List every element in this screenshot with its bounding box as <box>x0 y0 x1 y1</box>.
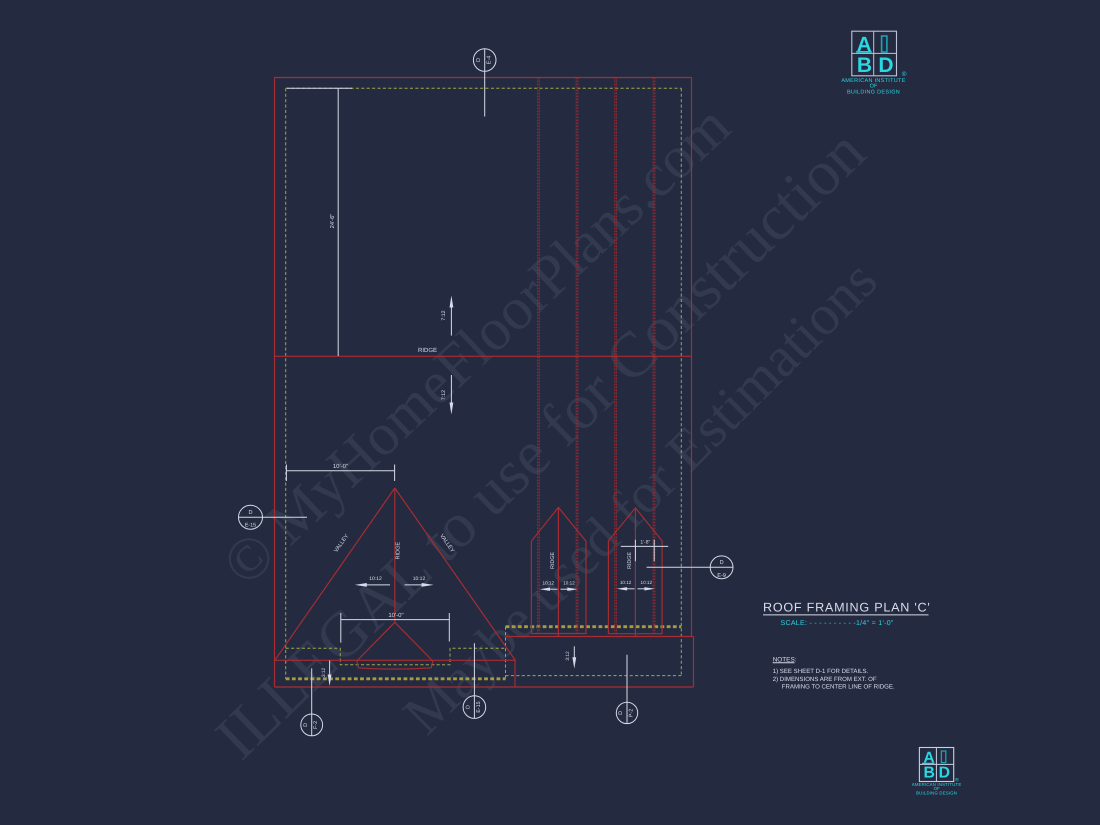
svg-text:RIDGE: RIDGE <box>418 347 437 354</box>
svg-text:RIDGE: RIDGE <box>627 552 633 569</box>
svg-text:E-15: E-15 <box>476 701 482 712</box>
svg-text:10:12: 10:12 <box>620 580 632 585</box>
svg-text:1) SEE SHEET D-1 FOR DETAILS.: 1) SEE SHEET D-1 FOR DETAILS. <box>773 668 869 675</box>
svg-text:BUILDING DESIGN: BUILDING DESIGN <box>847 89 900 95</box>
svg-text:10:12: 10:12 <box>543 580 555 585</box>
svg-text:B: B <box>857 54 872 77</box>
svg-text:3:12: 3:12 <box>321 668 327 678</box>
svg-text:RIDGE: RIDGE <box>550 552 556 569</box>
svg-text:10:12: 10:12 <box>563 580 575 585</box>
svg-text:D: D <box>618 711 624 715</box>
svg-text:SCALE: - - - - - - - - - -1/4": SCALE: - - - - - - - - - -1/4" = 1'-0" <box>781 619 894 627</box>
svg-text:B: B <box>923 765 934 782</box>
svg-text:FRAMING TO CENTER LINE OF RIDG: FRAMING TO CENTER LINE OF RIDGE. <box>782 683 895 690</box>
svg-text:D: D <box>720 560 724 566</box>
svg-text:7:12: 7:12 <box>441 390 447 400</box>
svg-text:3:12: 3:12 <box>565 651 571 661</box>
svg-text:RIDGE: RIDGE <box>396 542 402 560</box>
svg-text:P-2: P-2 <box>629 709 635 717</box>
svg-text:NOTES:: NOTES: <box>773 656 797 663</box>
svg-text:ROOF FRAMING PLAN 'C': ROOF FRAMING PLAN 'C' <box>763 601 931 615</box>
svg-text:10:12: 10:12 <box>369 576 382 582</box>
svg-text:BUILDING DESIGN: BUILDING DESIGN <box>916 791 957 796</box>
svg-text:E-15: E-15 <box>245 523 256 529</box>
svg-text:1'-8": 1'-8" <box>640 540 650 546</box>
svg-text:E-4: E-4 <box>486 56 492 65</box>
svg-text:D: D <box>303 723 309 727</box>
svg-text:D: D <box>248 510 252 516</box>
svg-text:F-2: F-2 <box>313 721 319 729</box>
svg-text:2) DIMENSIONS ARE FROM EXT. O: 2) DIMENSIONS ARE FROM EXT. OF <box>773 676 877 683</box>
svg-text:D: D <box>476 58 482 62</box>
svg-text:10'-0": 10'-0" <box>388 612 403 619</box>
svg-text:10'-0": 10'-0" <box>333 463 348 470</box>
svg-text:7:12: 7:12 <box>441 310 447 320</box>
svg-text:10:12: 10:12 <box>413 576 426 582</box>
svg-text:D: D <box>878 54 893 77</box>
svg-text:10:12: 10:12 <box>641 580 653 585</box>
svg-text:24'-6": 24'-6" <box>329 214 336 229</box>
svg-text:D: D <box>939 765 950 782</box>
svg-text:E-9: E-9 <box>717 573 726 579</box>
svg-text:D: D <box>466 705 472 709</box>
